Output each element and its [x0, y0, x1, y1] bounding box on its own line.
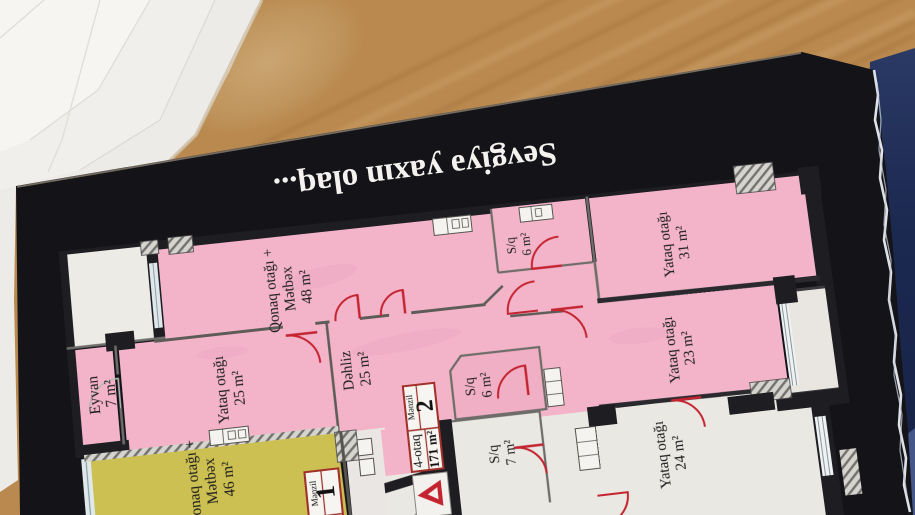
svg-text:46 m²: 46 m² — [219, 460, 239, 498]
svg-text:6 m²: 6 m² — [517, 232, 535, 257]
svg-text:7 m²: 7 m² — [502, 439, 520, 466]
svg-text:S/q: S/q — [486, 444, 503, 464]
svg-text:48 m²: 48 m² — [297, 268, 317, 304]
svg-text:6 m²: 6 m² — [478, 371, 496, 398]
svg-text:25 m²: 25 m² — [229, 369, 249, 406]
svg-text:7 m²: 7 m² — [102, 378, 121, 408]
svg-text:S/q: S/q — [462, 377, 479, 397]
